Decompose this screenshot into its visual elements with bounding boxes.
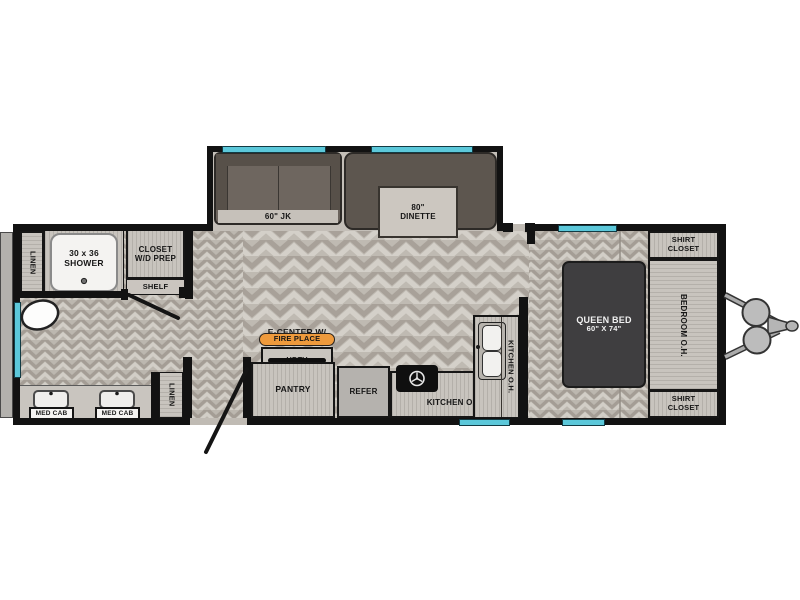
faucet-left-icon [49, 392, 53, 396]
kitchen-faucet-icon [476, 345, 480, 349]
entry-door-swing [206, 369, 247, 452]
propane-tank-bottom [744, 327, 771, 354]
floorplan: 60" JK 80" DINETTE LINEN 30 x 36 SHOWER … [0, 0, 800, 600]
shower-drain-icon [81, 278, 86, 283]
faucet-right-icon [115, 392, 119, 396]
stove-burner-icon [410, 372, 424, 386]
overlay-layer [0, 0, 800, 600]
propane-tank-top [743, 299, 770, 326]
bath-door-swing [129, 295, 178, 318]
toilet [18, 296, 62, 334]
hitch-ball [786, 321, 798, 331]
